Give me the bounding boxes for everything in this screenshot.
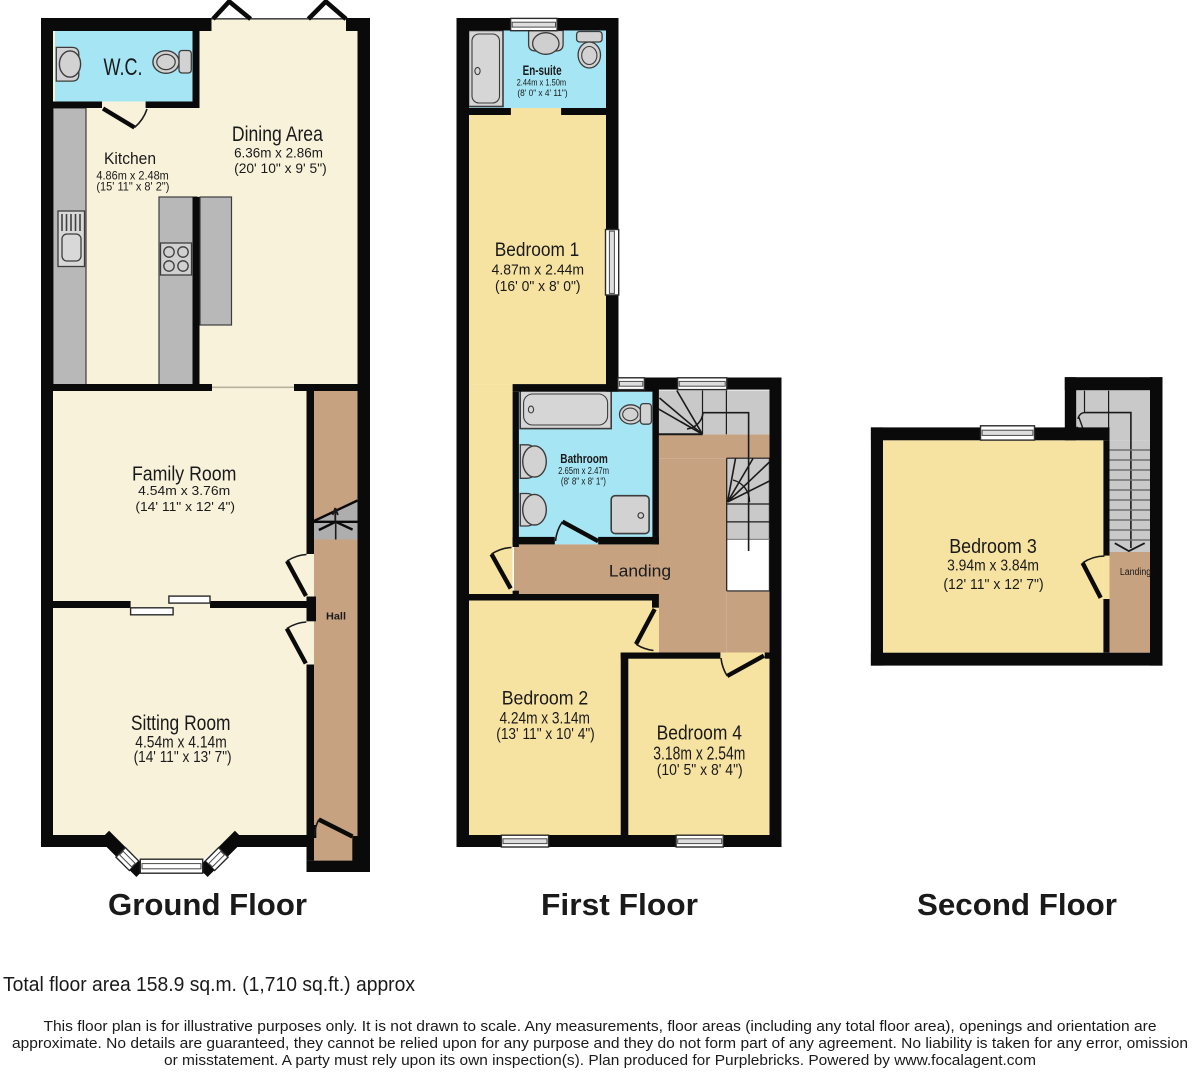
svg-text:Dining Area: Dining Area	[232, 123, 323, 146]
svg-text:4.87m x 2.44m: 4.87m x 2.44m	[492, 262, 585, 279]
svg-text:En-suite: En-suite	[523, 63, 562, 78]
svg-text:(12' 11" x 12' 7"): (12' 11" x 12' 7")	[943, 576, 1043, 593]
svg-text:approximate. No details are gu: approximate. No details are guaranteed, …	[12, 1035, 1188, 1052]
svg-text:(14' 11" x 13' 7"): (14' 11" x 13' 7")	[134, 749, 232, 766]
svg-text:Kitchen: Kitchen	[104, 149, 156, 168]
svg-text:Ground Floor: Ground Floor	[108, 887, 307, 922]
svg-text:Bedroom 2: Bedroom 2	[502, 688, 589, 709]
svg-text:Hall: Hall	[326, 611, 346, 623]
svg-text:Sitting Room: Sitting Room	[131, 711, 231, 735]
svg-text:This floor plan is for illustr: This floor plan is for illustrative purp…	[44, 1018, 1157, 1035]
svg-text:W.C.: W.C.	[104, 54, 143, 81]
svg-text:2.65m x 2.47m: 2.65m x 2.47m	[558, 466, 609, 477]
svg-text:3.94m x 3.84m: 3.94m x 3.84m	[947, 558, 1039, 575]
svg-text:(15' 11" x 8' 2"): (15' 11" x 8' 2")	[96, 180, 169, 194]
svg-text:2.44m x 1.50m: 2.44m x 1.50m	[517, 78, 567, 89]
svg-text:Bedroom 3: Bedroom 3	[949, 536, 1037, 558]
svg-text:Bedroom 4: Bedroom 4	[657, 722, 742, 744]
svg-text:First Floor: First Floor	[541, 887, 698, 922]
svg-text:(10' 5" x 8' 4"): (10' 5" x 8' 4")	[657, 762, 743, 779]
svg-text:(8' 0" x 4' 11"): (8' 0" x 4' 11")	[517, 88, 567, 99]
svg-text:Second Floor: Second Floor	[917, 887, 1117, 922]
svg-text:(13' 11" x 10' 4"): (13' 11" x 10' 4")	[496, 726, 595, 743]
svg-text:or misstatement. A party must: or misstatement. A party must rely upon …	[164, 1052, 1036, 1069]
svg-text:Bathroom: Bathroom	[560, 451, 608, 466]
svg-text:Total floor area 158.9 sq.m. (: Total floor area 158.9 sq.m. (1,710 sq.f…	[3, 973, 416, 996]
svg-text:6.36m x 2.86m: 6.36m x 2.86m	[234, 145, 323, 161]
svg-text:Landing: Landing	[1120, 567, 1151, 578]
svg-text:4.24m x 3.14m: 4.24m x 3.14m	[499, 710, 590, 728]
svg-text:(20' 10" x 9' 5"): (20' 10" x 9' 5")	[234, 160, 327, 176]
svg-text:Landing: Landing	[609, 562, 671, 580]
svg-text:(8' 8" x 8' 1"): (8' 8" x 8' 1")	[561, 477, 606, 488]
svg-text:(14' 11" x 12' 4"): (14' 11" x 12' 4")	[135, 499, 235, 514]
svg-text:Bedroom 1: Bedroom 1	[495, 239, 580, 261]
svg-text:4.54m x 3.76m: 4.54m x 3.76m	[138, 483, 230, 498]
svg-text:3.18m x 2.54m: 3.18m x 2.54m	[653, 743, 745, 763]
svg-text:(16' 0" x 8' 0"): (16' 0" x 8' 0")	[495, 278, 581, 295]
